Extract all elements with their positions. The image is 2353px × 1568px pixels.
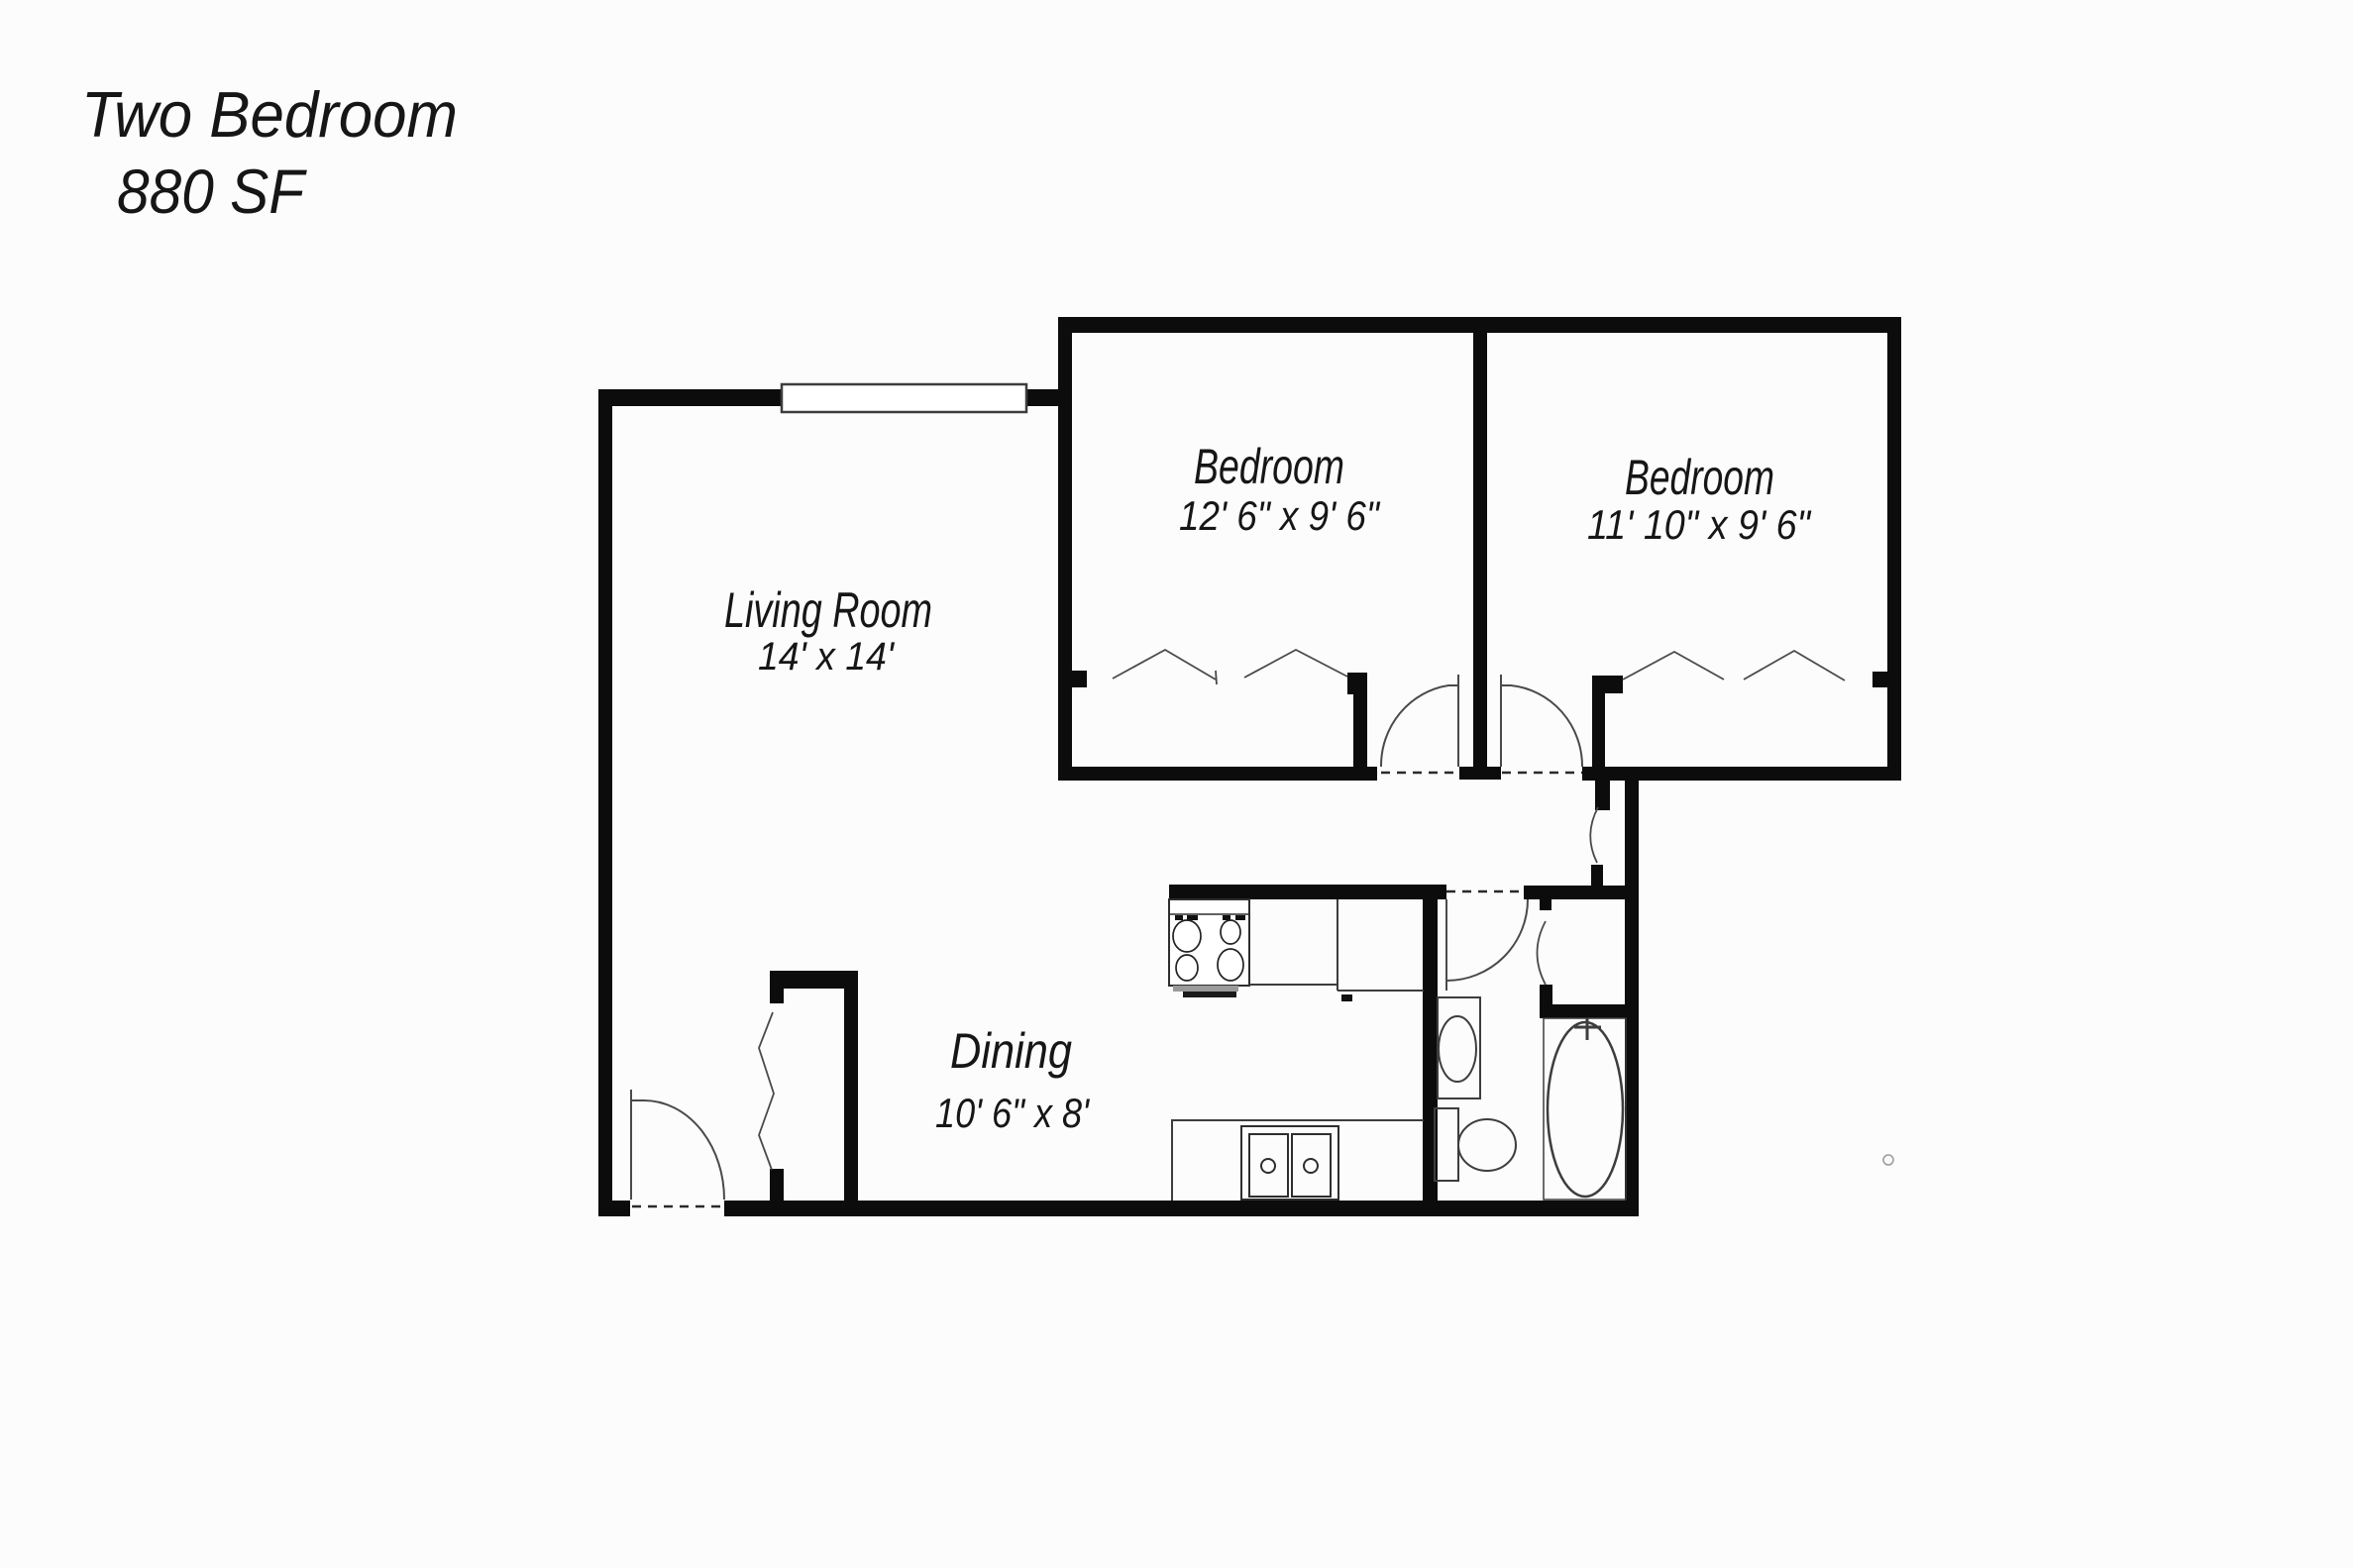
svg-text:Two Bedroom: Two Bedroom (81, 78, 458, 151)
svg-text:Living Room: Living Room (724, 582, 932, 638)
svg-text:14' x 14': 14' x 14' (758, 635, 895, 679)
svg-text:10' 6" x 8': 10' 6" x 8' (935, 1090, 1091, 1136)
svg-text:Bedroom: Bedroom (1194, 439, 1344, 494)
svg-text:Bedroom: Bedroom (1625, 450, 1774, 505)
svg-text:11' 10" x 9' 6": 11' 10" x 9' 6" (1587, 501, 1812, 548)
svg-text:Dining: Dining (950, 1023, 1072, 1079)
svg-text:880 SF: 880 SF (117, 157, 307, 227)
svg-text:12' 6" x 9' 6": 12' 6" x 9' 6" (1179, 492, 1381, 539)
